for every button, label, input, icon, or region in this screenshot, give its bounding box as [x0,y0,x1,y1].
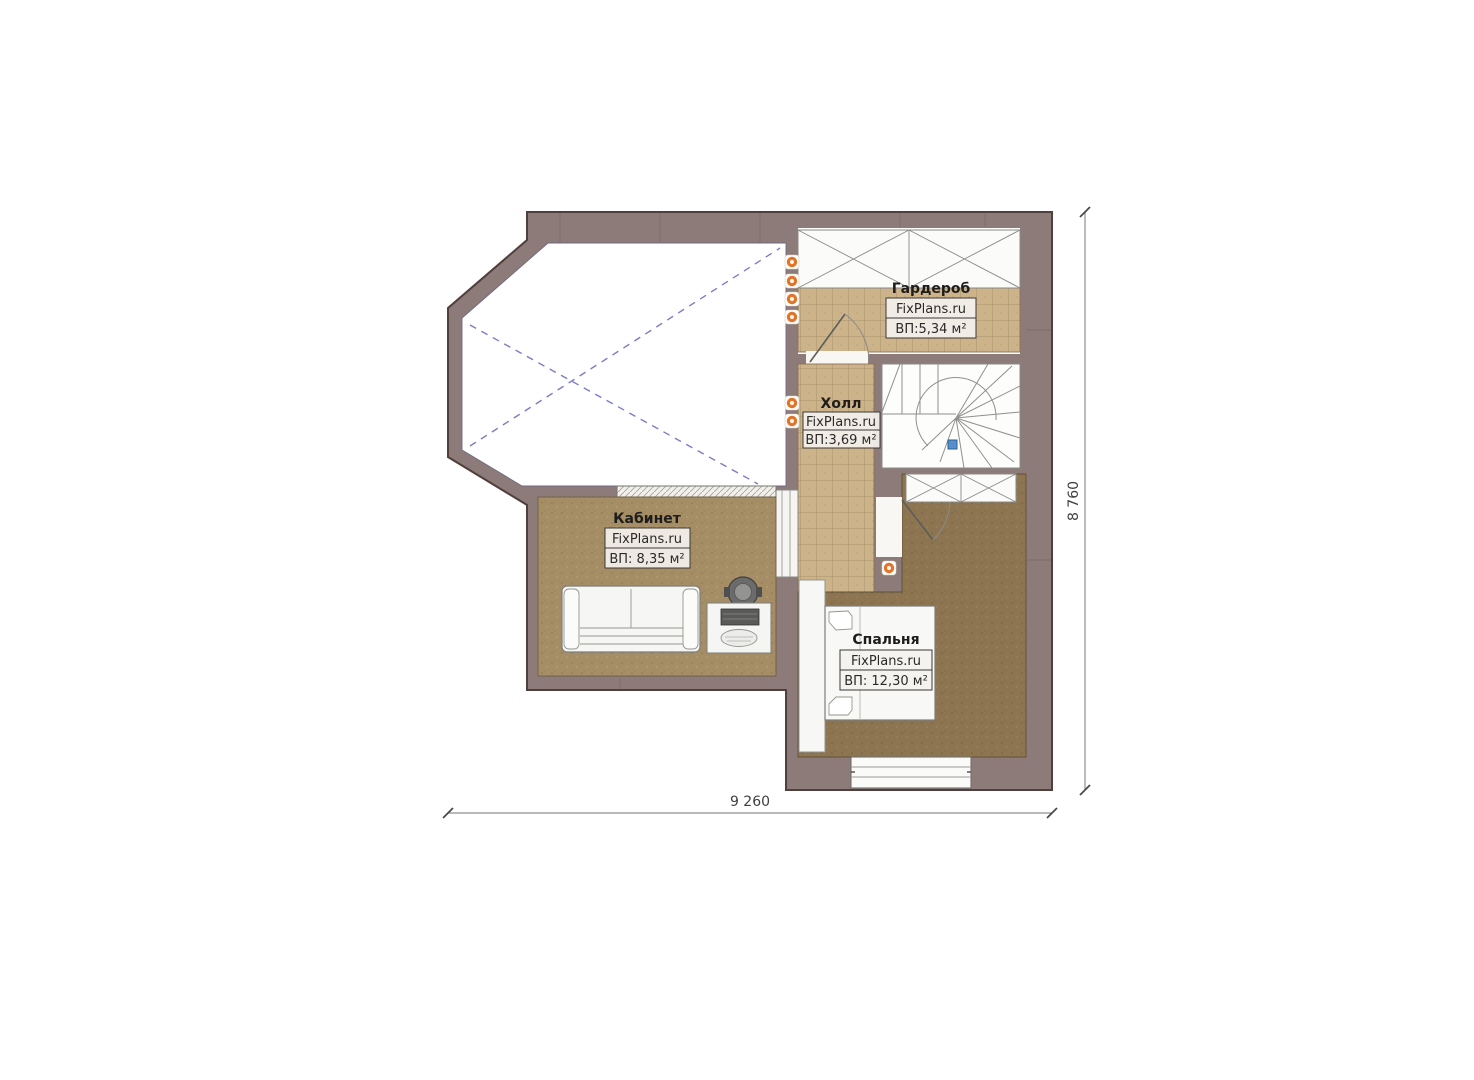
floor-plan-page: Гардероб FixPlans.ru ВП:5,34 м² Холл Fix… [0,0,1474,1080]
room-area: ВП:3,69 м² [805,433,876,448]
watermark: FixPlans.ru [851,654,921,669]
window-bedroom [851,757,971,788]
room-title: Спальня [852,632,919,648]
sofa [562,586,700,652]
room-title: Холл [821,396,862,412]
stair-marker [948,440,957,449]
staircase [882,364,1020,468]
steps-office-hall [774,490,798,577]
downlight-icon [785,274,799,288]
dimension-height-label: 8 760 [1066,481,1082,521]
downlight-icon [785,310,799,324]
downlight-icon [785,292,799,306]
room-label-bedroom: Спальня FixPlans.ru ВП: 12,30 м² [840,632,932,690]
watermark: FixPlans.ru [612,532,682,547]
room-label-office: Кабинет FixPlans.ru ВП: 8,35 м² [605,511,690,568]
downlight-icon [785,255,799,269]
dimension-width-label: 9 260 [730,794,770,810]
watermark: FixPlans.ru [806,415,876,430]
downlight-icon [882,561,896,575]
desk [707,603,771,653]
room-area: ВП: 12,30 м² [844,674,928,689]
downlight-icon [785,414,799,428]
room-label-wardrobe: Гардероб FixPlans.ru ВП:5,34 м² [886,281,976,338]
dimension-bottom: 9 260 [443,794,1057,818]
downlight-icon [785,396,799,410]
void-area [462,243,786,486]
bedroom-closet [906,474,1016,502]
wardrobe-closet [798,230,1020,288]
void-railing [617,486,776,497]
watermark: FixPlans.ru [896,302,966,317]
room-area: ВП: 8,35 м² [609,552,684,567]
dimension-right: 8 760 [1066,207,1090,795]
room-title: Кабинет [613,511,682,527]
room-area: ВП:5,34 м² [895,322,966,337]
room-title: Гардероб [892,281,971,297]
keyboard [721,609,759,625]
floor-plan-svg: Гардероб FixPlans.ru ВП:5,34 м² Холл Fix… [0,0,1474,1080]
